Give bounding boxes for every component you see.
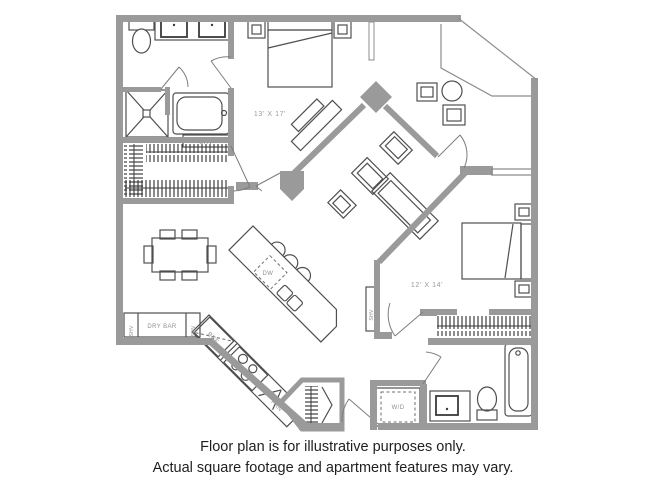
sofa xyxy=(372,173,438,239)
nightstand xyxy=(515,281,533,297)
bed xyxy=(268,30,332,87)
bedroom-2-door xyxy=(395,312,423,336)
nightstand xyxy=(248,21,265,38)
closet-1-door xyxy=(231,146,250,187)
bedroom-2: SHV 12' X 14' xyxy=(366,204,533,336)
sink-left xyxy=(161,20,187,37)
bathroom-1-door xyxy=(211,61,231,88)
sink xyxy=(436,396,458,415)
kitchen-island: DW xyxy=(229,220,351,342)
disclaimer-line-1: Floor plan is for illustrative purposes … xyxy=(200,439,466,455)
laundry-closet: W/D xyxy=(376,388,420,426)
dry-bar-shelf-left-label: SHV xyxy=(129,325,135,337)
sink-right xyxy=(199,20,225,37)
dining-area xyxy=(144,230,216,280)
armchair xyxy=(380,132,413,165)
chair xyxy=(443,105,465,125)
bathroom-1: SHV xyxy=(126,18,231,147)
floor-plan: SHV 13' X 17' xyxy=(0,0,670,480)
bathroom-2 xyxy=(430,344,532,421)
side-table xyxy=(417,83,437,101)
disclaimer-line-2: Actual square footage and apartment feat… xyxy=(153,460,514,476)
wall-pier xyxy=(280,171,304,201)
bedroom-1-dimensions: 13' X 17' xyxy=(254,111,286,118)
dry-bar: DRY BAR SHV SHV xyxy=(124,313,200,337)
bathtub xyxy=(173,93,229,134)
den-door xyxy=(438,135,460,157)
faucet-left-icon xyxy=(173,24,175,26)
bed-headboard xyxy=(268,21,332,30)
bedroom-1-door xyxy=(256,173,280,186)
toilet-bowl xyxy=(133,29,151,53)
water-closet-door xyxy=(161,67,179,89)
living-room xyxy=(328,132,438,239)
round-chair xyxy=(442,81,462,101)
bedroom-2-dimensions: 12' X 14' xyxy=(411,282,443,289)
hanger-rail-top xyxy=(146,144,228,162)
shower xyxy=(126,90,168,137)
faucet-icon xyxy=(446,408,448,410)
island-counter xyxy=(229,226,345,342)
dishwasher-label: DW xyxy=(262,271,273,277)
dry-bar-shelf-right-label: SHV xyxy=(191,325,197,337)
corner-window xyxy=(458,18,537,80)
bed-headboard xyxy=(521,224,532,279)
dresser xyxy=(283,92,342,151)
nightstand xyxy=(334,21,351,38)
den xyxy=(417,81,465,125)
windows xyxy=(369,18,537,175)
entry xyxy=(281,380,378,429)
nightstand xyxy=(515,204,533,220)
washer-dryer-label: W/D xyxy=(392,405,405,411)
walk-in-closet-1 xyxy=(124,144,228,197)
bathroom-2-door xyxy=(423,357,441,384)
armchair xyxy=(328,190,356,218)
faucet-right-icon xyxy=(211,24,213,26)
dry-bar-label: DRY BAR xyxy=(147,324,177,330)
den-partition xyxy=(369,22,374,60)
corner-window-inner xyxy=(441,24,531,96)
toilet-bowl xyxy=(478,387,497,411)
dining-table xyxy=(152,238,208,272)
